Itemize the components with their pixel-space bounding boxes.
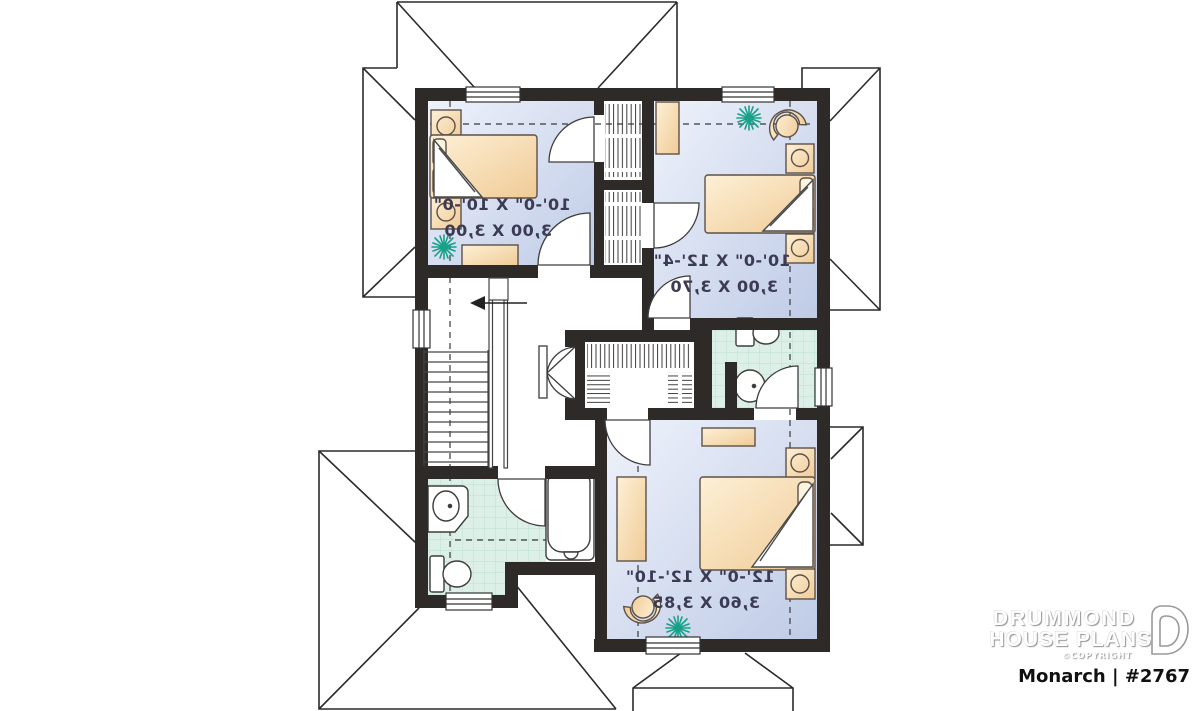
- drummond-d-logo-icon: [1148, 602, 1190, 658]
- bedroom-3-dim-metric: 3,60 X 3,85: [652, 593, 760, 612]
- roof-left: [363, 68, 415, 297]
- desk: [617, 477, 646, 561]
- dresser: [702, 428, 755, 446]
- window-icon: [446, 593, 492, 610]
- toilet-tank: [430, 556, 444, 592]
- plant-icon: [737, 106, 761, 130]
- floor-plan-drawing: 10'-0" X 10'-0" 3,00 X 3,00 10'-0" X 12'…: [0, 0, 1200, 711]
- faucet-dot: [752, 384, 755, 387]
- dresser: [462, 245, 518, 266]
- bedroom-3-dim-imperial: 12'-0" X 12'-10": [625, 567, 774, 586]
- walkin-rod-left: [587, 372, 613, 406]
- nightstand: [786, 144, 814, 173]
- walkin-rod-right: [668, 372, 692, 406]
- window-icon: [413, 310, 430, 348]
- roof-dormer-right: [830, 427, 863, 545]
- window-icon: [466, 87, 520, 102]
- staircase: [424, 278, 527, 468]
- stair-railing: [489, 278, 508, 468]
- faucet-dot: [448, 504, 451, 507]
- toilet-icon: [443, 561, 471, 587]
- bedroom-2-dim-imperial: 10'-0" X 12'-4": [653, 251, 791, 270]
- brand-name-line2: HOUSE PLANS: [932, 629, 1152, 650]
- plan-title: Monarch | #2767: [932, 666, 1190, 687]
- sink-icon: [433, 491, 459, 521]
- bedroom-1-dim-metric: 3,00 X 3,00: [444, 221, 552, 240]
- bedroom-1-dim-imperial: 10'-0" X 10'-0": [433, 195, 571, 214]
- window-icon: [722, 87, 774, 102]
- floor-plan-page: 10'-0" X 10'-0" 3,00 X 3,00 10'-0" X 12'…: [0, 0, 1200, 711]
- window-icon: [815, 368, 832, 406]
- brand-name-line1: DRUMMOND: [932, 608, 1136, 629]
- closet-b-rod: [605, 192, 641, 263]
- copyright-label: ©COPYRIGHT: [932, 651, 1132, 660]
- window-icon: [646, 637, 700, 654]
- bedroom-2-dim-metric: 3,00 X 3,70: [670, 277, 778, 296]
- roof-bottom-center: [633, 653, 793, 711]
- walkin-rod-top: [587, 344, 692, 368]
- closet-a-rod: [605, 103, 641, 177]
- french-doors: [539, 346, 575, 399]
- dresser: [656, 102, 679, 154]
- bathtub-inner: [548, 474, 590, 552]
- roof-top: [397, 2, 677, 88]
- branding-block: DRUMMOND HOUSE PLANS ©COPYRIGHT Monarch …: [932, 608, 1192, 687]
